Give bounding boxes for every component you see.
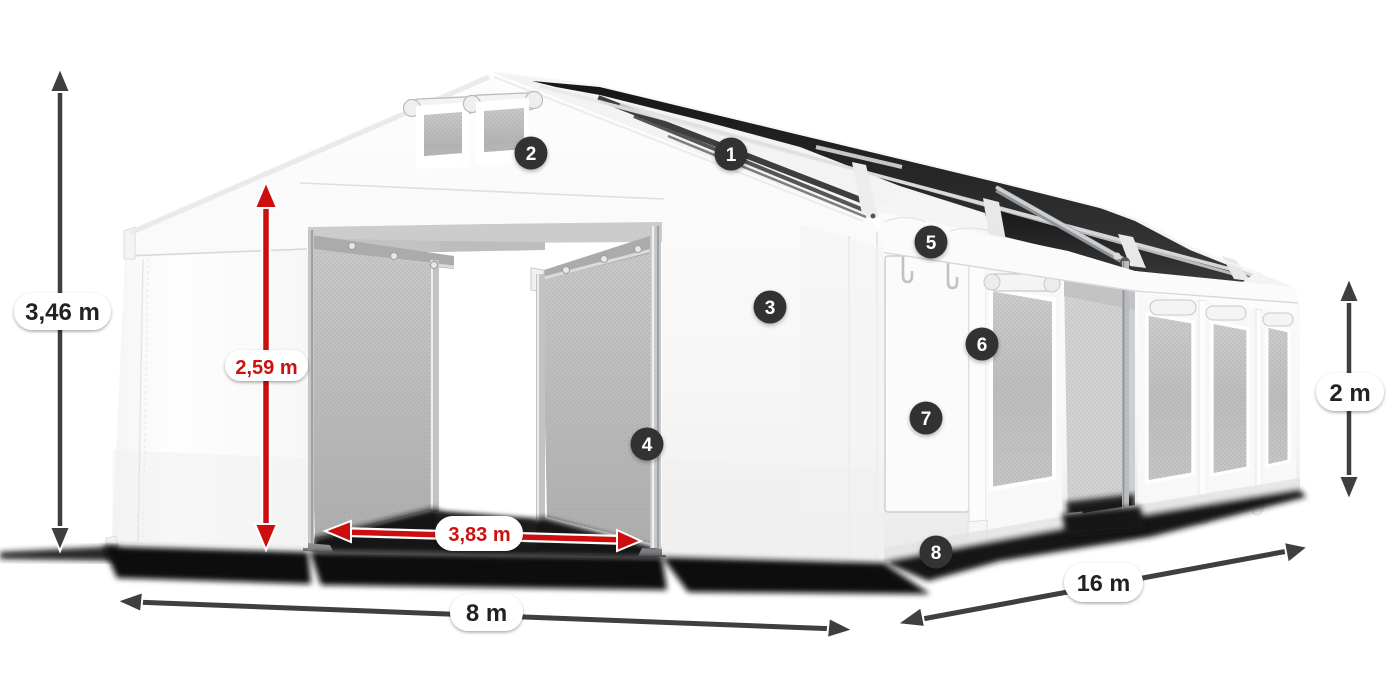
svg-text:6: 6	[977, 335, 988, 356]
svg-text:2,59 m: 2,59 m	[235, 357, 297, 379]
svg-text:3,46 m: 3,46 m	[25, 299, 100, 326]
svg-text:8: 8	[931, 543, 942, 564]
svg-text:7: 7	[921, 409, 932, 430]
svg-text:16 m: 16 m	[1077, 570, 1131, 596]
svg-text:4: 4	[642, 435, 653, 456]
svg-text:8 m: 8 m	[466, 600, 507, 627]
svg-text:2: 2	[526, 144, 537, 165]
svg-text:5: 5	[926, 233, 937, 254]
svg-text:3: 3	[765, 298, 776, 319]
svg-text:3,83 m: 3,83 m	[448, 524, 510, 546]
svg-text:2 m: 2 m	[1329, 380, 1370, 407]
svg-text:1: 1	[726, 145, 737, 166]
